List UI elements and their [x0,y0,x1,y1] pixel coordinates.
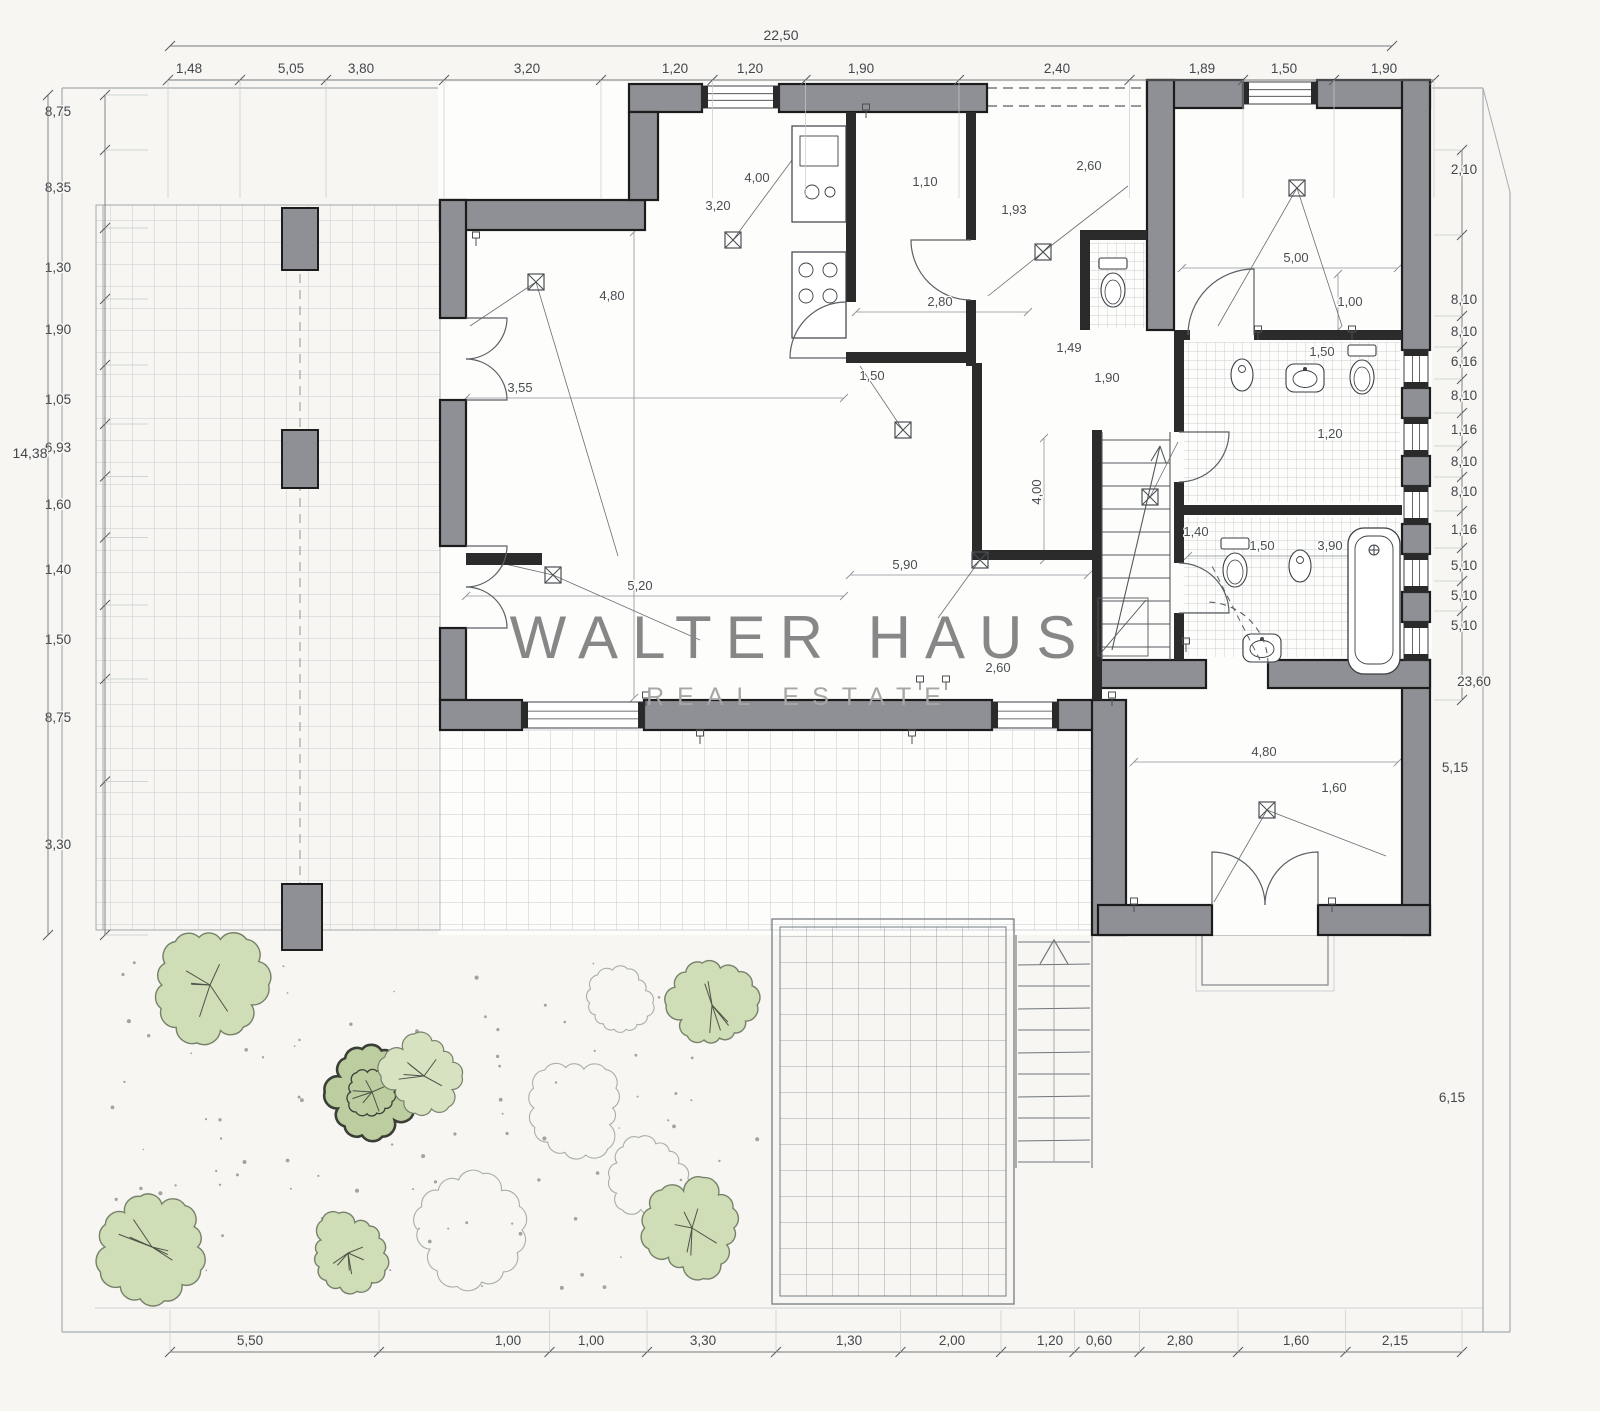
dimension-label: 2,00 [939,1333,965,1348]
room-dimension-label: 2,60 [1076,158,1101,173]
dimension-label: 6,93 [45,440,71,455]
tree-icon [641,1177,738,1280]
partition-wall [1080,230,1147,240]
room-dimension-label: 5,90 [892,557,917,572]
dimension-label: 1,20 [737,61,763,76]
partition-wall [1080,230,1090,330]
sink-icon [1286,364,1324,392]
dimension-label: 1,20 [662,61,688,76]
garden-dot [244,1048,248,1052]
room-dimension-label: 1,10 [912,174,937,189]
patio-grid [780,927,1006,1296]
room-dimension-label: 1,50 [1249,538,1274,553]
dimension-label: 3,30 [45,837,71,852]
dimension-label: 0,60 [1086,1333,1112,1348]
garden-dot [127,1019,131,1023]
garden-dot [412,1188,414,1190]
garden-dot [560,1286,564,1290]
garden-dot [593,963,595,965]
garden-dot [262,1056,264,1058]
dimension-label: 1,00 [578,1333,604,1348]
wall-segment [1147,80,1174,330]
dimension-label: 1,90 [1371,61,1397,76]
garden-dot [174,1184,176,1186]
room-dimension-label: 1,49 [1056,340,1081,355]
garden-dot [286,1159,290,1163]
garden-dot [674,1092,677,1095]
garden-dot [111,1106,115,1110]
wall-segment [440,628,466,700]
toilet-icon [1099,258,1127,307]
window-symbol [522,702,644,728]
garden-dot [555,1081,557,1083]
entry-porch [1202,935,1328,985]
garden-dot [672,1125,676,1129]
partition-wall [966,112,976,240]
partition-wall [1174,613,1184,660]
dimension-label: 23,60 [1457,674,1491,689]
garden-dot [243,1160,247,1164]
room-dimension-label: 1,20 [1317,426,1342,441]
garden-dot [484,1015,487,1018]
garden-dot [428,1240,432,1244]
garden-dot [219,1184,221,1186]
garden-dot [205,1118,207,1120]
dimension-label: 3,80 [348,61,374,76]
garden-dot [544,1004,547,1007]
partition-wall [1174,505,1402,515]
garden-dot [447,1228,449,1230]
room-dimension-label: 1,90 [1094,370,1119,385]
terrace-south [440,730,1092,930]
room-dimension-label: 2,80 [927,294,952,309]
dimension-label: 1,05 [45,392,71,407]
bush-sketch [414,1170,527,1291]
dimension-label: 1,90 [848,61,874,76]
dimension-label: 2,10 [1451,162,1477,177]
dimension-label: 1,30 [836,1333,862,1348]
room-dimension-label: 4,80 [599,288,624,303]
dimension-label: 1,00 [495,1333,521,1348]
floor-plan-page: 22,501,485,053,803,201,201,201,902,401,8… [0,0,1600,1411]
garden-dot [499,1098,503,1102]
garden-dot [680,1179,683,1182]
garden-dot [221,1234,224,1237]
garden-dot [496,1028,499,1031]
wall-segment [440,400,466,546]
partition-wall [846,352,972,363]
garden-dot [537,1178,540,1181]
partition-wall [1174,515,1184,563]
dimension-label: 5,50 [237,1333,263,1348]
room-dimension-label: 3,20 [705,198,730,213]
dimension-label: 1,30 [45,260,71,275]
garden-dot [498,1065,501,1068]
garden-dot [391,1143,393,1145]
garden-patio [772,919,1014,1304]
bush-sketch [587,966,655,1033]
garden-dot [506,1132,509,1135]
wall-segment [644,700,992,730]
wall-segment [629,84,702,112]
room-dimension-label: 4,00 [744,170,769,185]
wall-segment [1402,80,1430,350]
dimension-label: 8,10 [1451,324,1477,339]
room-dimension-label: 5,00 [1283,250,1308,265]
dimension-label: 6,15 [1439,1090,1465,1105]
dimension-label: 1,60 [45,497,71,512]
dimension-label: 8,75 [45,104,71,119]
dimension-label: 2,40 [1044,61,1070,76]
partition-wall [1254,330,1402,340]
garden-dot [658,996,661,999]
window-symbol [1404,486,1428,524]
garden-dot [620,1256,622,1258]
dimension-label: 1,50 [1271,61,1297,76]
bathtub-icon [1348,528,1400,674]
garden-dot [542,1136,546,1140]
room-dimension-label: 4,80 [1251,744,1276,759]
garden-dot [502,1113,504,1115]
window-symbol [702,86,779,108]
garden-dot [220,1137,222,1139]
room-dimension-label: 1,00 [1337,294,1362,309]
garden-dot [205,1270,207,1272]
garden-dot [139,1187,142,1190]
garden-dot [434,1180,437,1183]
garden-dot [465,1221,468,1224]
dimension-label: 8,75 [45,710,71,725]
window-symbol [1404,418,1428,456]
dimension-label: 5,10 [1451,618,1477,633]
partition-wall [846,112,856,302]
garden-dot [147,1034,150,1037]
garden-dot [283,965,285,967]
garden-dot [637,1096,639,1098]
room-dimension-label: 4,00 [1029,479,1044,504]
garden-dot [298,1039,300,1041]
garden-dot [496,1055,499,1058]
tree-icon [665,961,760,1043]
bidet-icon [1231,359,1253,391]
bidet-icon [1289,550,1311,582]
garden-dot [596,1171,600,1175]
garden-dot [349,1022,352,1025]
tree-icon [156,933,271,1045]
room-dimension-label: 1,93 [1001,202,1026,217]
dimension-label: 8,10 [1451,454,1477,469]
garden-dot [453,1132,456,1135]
dimension-label: 1,40 [45,562,71,577]
garden-dot [421,1154,425,1158]
wall-segment [440,700,522,730]
window-symbol [992,702,1058,728]
exterior-stairs [1016,935,1092,1168]
dimension-label: 1,48 [176,61,202,76]
window-symbol [1404,554,1428,592]
dimension-label: 5,05 [278,61,304,76]
garden-dot [635,1054,638,1057]
room-dimension-label: 3,90 [1317,538,1342,553]
garden-dot [564,1021,567,1024]
garden-dot [215,1170,217,1172]
dimension-label: 1,20 [1037,1333,1063,1348]
wall-segment [1098,660,1206,688]
garden-dot [481,1285,483,1287]
room-dimension-label: 5,20 [627,578,652,593]
garden-dot [418,1228,420,1230]
wall-segment [1092,700,1126,935]
garden-dot [574,1217,578,1221]
garden-dot [511,1223,513,1225]
partition-wall [972,363,982,560]
pergola-pillar [282,430,318,488]
room-dimension-label: 1,60 [1321,780,1346,795]
partition-wall [1174,340,1184,432]
wall-segment [440,200,645,230]
dimension-label: 1,50 [45,632,71,647]
dimension-label: 1,89 [1189,61,1215,76]
garden-dot [290,1188,292,1190]
garden-dot [143,1149,145,1151]
garden-dot [475,976,479,980]
wall-segment [1098,905,1212,935]
garden-dot [691,1057,694,1060]
dimension-label: 1,60 [1283,1333,1309,1348]
dimension-label: 5,10 [1451,588,1477,603]
garden-dot [317,1175,319,1177]
bush-sketch [529,1063,620,1159]
window-symbol [1243,82,1317,104]
wall-segment [1318,905,1430,935]
wall-segment [1402,456,1430,486]
pergola-pillar [282,884,322,950]
garden-dot [298,1096,301,1099]
dimension-label: 22,50 [763,27,798,43]
dimension-label: 5,15 [1442,760,1468,775]
dimension-label: 3,20 [514,61,540,76]
garden-dot [190,1052,192,1054]
window-symbol [1404,622,1428,660]
room-dimension-label: 1,50 [859,368,884,383]
garden-dot [300,1098,304,1102]
dimension-label: 8,10 [1451,292,1477,307]
garden-dot [389,1269,391,1271]
terrace-left [96,205,440,930]
dimension-label: 2,80 [1167,1333,1193,1348]
toilet-icon [1348,345,1376,394]
window-symbol [1404,350,1428,388]
garden-dot [690,1099,692,1101]
wall-segment [440,200,466,318]
room-dimension-label: 3,55 [507,380,532,395]
wall-segment [1402,592,1430,622]
garden-dot [393,991,395,993]
pergola-pillar [282,208,318,270]
dimension-label: 3,30 [690,1333,716,1348]
tree-icon [96,1194,205,1306]
garden-trees [96,933,760,1306]
partition-wall [1092,430,1102,700]
garden-dot [519,1232,523,1236]
dimension-label: 6,16 [1451,354,1477,369]
garden-dot [718,1160,720,1162]
garden-dot [123,1081,125,1083]
dimension-label: 1,16 [1451,422,1477,437]
dimension-label: 1,90 [45,322,71,337]
dimension-label: 8,35 [45,180,71,195]
wall-segment [629,112,658,200]
wall-segment [1402,524,1430,554]
garden-dot [755,1137,759,1141]
room-dimension-label: 2,60 [985,660,1010,675]
dimension-label: 8,10 [1451,484,1477,499]
garden-dot [115,1198,118,1201]
room-dimension-label: 1,50 [1309,344,1334,359]
garden-dot [355,1189,359,1193]
garden-dot [236,1173,239,1176]
wall-segment [1402,388,1430,418]
dimension-label: 8,10 [1451,388,1477,403]
partition-wall [972,550,1092,560]
garden-dot [619,1127,621,1129]
dimension-label: 14,38 [12,445,47,461]
wall-segment [779,84,987,112]
dimension-label: 1,16 [1451,522,1477,537]
garden-dot [294,1045,296,1047]
garden-dot [667,1119,669,1121]
tree-icon [315,1212,389,1294]
garden-dot [133,961,136,964]
room-dimension-label: 1,40 [1183,524,1208,539]
dimension-label: 5,10 [1451,558,1477,573]
toilet-icon [1221,538,1249,587]
garden-dot [580,1273,584,1277]
garden-dot [594,1050,596,1052]
garden-dot [603,1285,607,1289]
garden-dot [158,1191,162,1195]
garden-dot [287,992,289,994]
garden-dot [218,1118,221,1121]
wall-segment [1402,660,1430,935]
dimension-label: 2,15 [1382,1333,1408,1348]
kitchen-counter [792,126,846,222]
floor-plan-drawing: 22,501,485,053,803,201,201,201,902,401,8… [0,0,1600,1411]
garden-dot [121,973,124,976]
